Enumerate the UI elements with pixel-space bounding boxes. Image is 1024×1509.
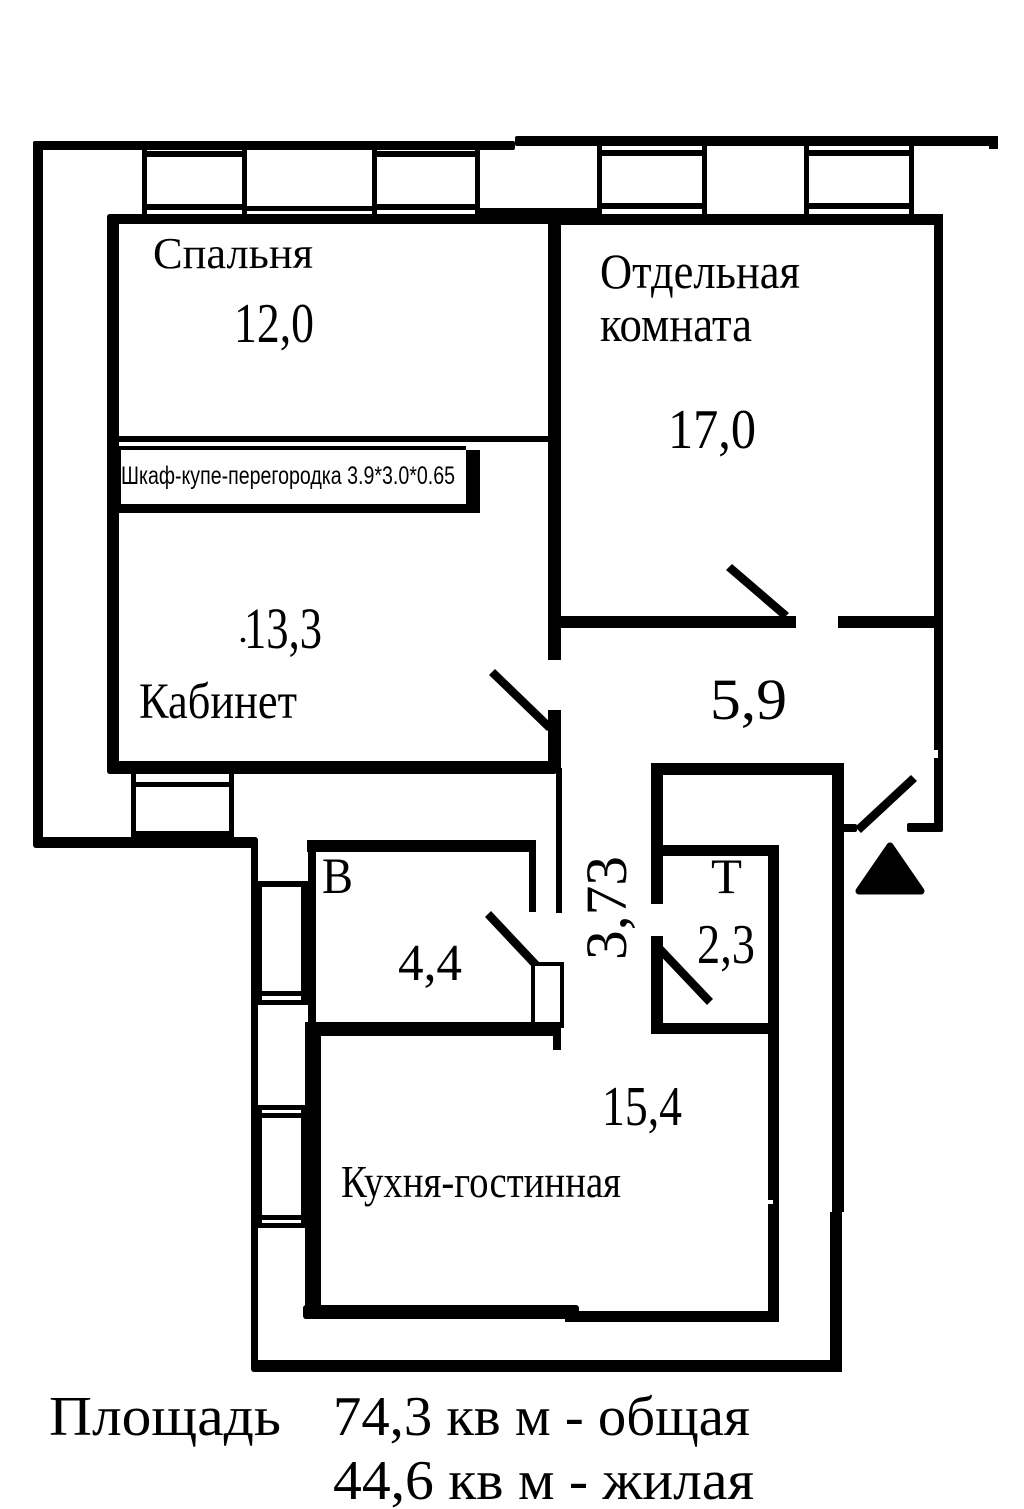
svg-text:74,3 кв м - общая: 74,3 кв м - общая	[333, 1386, 750, 1448]
svg-text:15,4: 15,4	[602, 1076, 682, 1138]
svg-text:4,4: 4,4	[398, 935, 462, 992]
svg-text:комната: комната	[600, 296, 752, 352]
svg-text:Кабинет: Кабинет	[139, 674, 297, 730]
svg-text:Т: Т	[711, 848, 742, 904]
svg-text:Площадь: Площадь	[49, 1386, 281, 1448]
svg-text:5,9: 5,9	[710, 667, 787, 732]
svg-text:Шкаф-купе-перегородка 3.9*3.0*: Шкаф-купе-перегородка 3.9*3.0*0.65	[121, 462, 455, 490]
svg-text:44,6 кв м - жилая: 44,6 кв м - жилая	[333, 1450, 754, 1509]
svg-text:Спальня: Спальня	[153, 229, 313, 278]
svg-text:Отдельная: Отдельная	[600, 243, 800, 299]
svg-text:17,0: 17,0	[668, 399, 756, 461]
svg-text:3,73: 3,73	[574, 856, 639, 960]
svg-text:12,0: 12,0	[234, 293, 314, 355]
svg-text:13,3: 13,3	[244, 596, 322, 661]
svg-text:2,3: 2,3	[697, 914, 755, 976]
svg-text:Кухня-гостинная: Кухня-гостинная	[341, 1156, 621, 1207]
svg-text:В: В	[322, 849, 353, 905]
